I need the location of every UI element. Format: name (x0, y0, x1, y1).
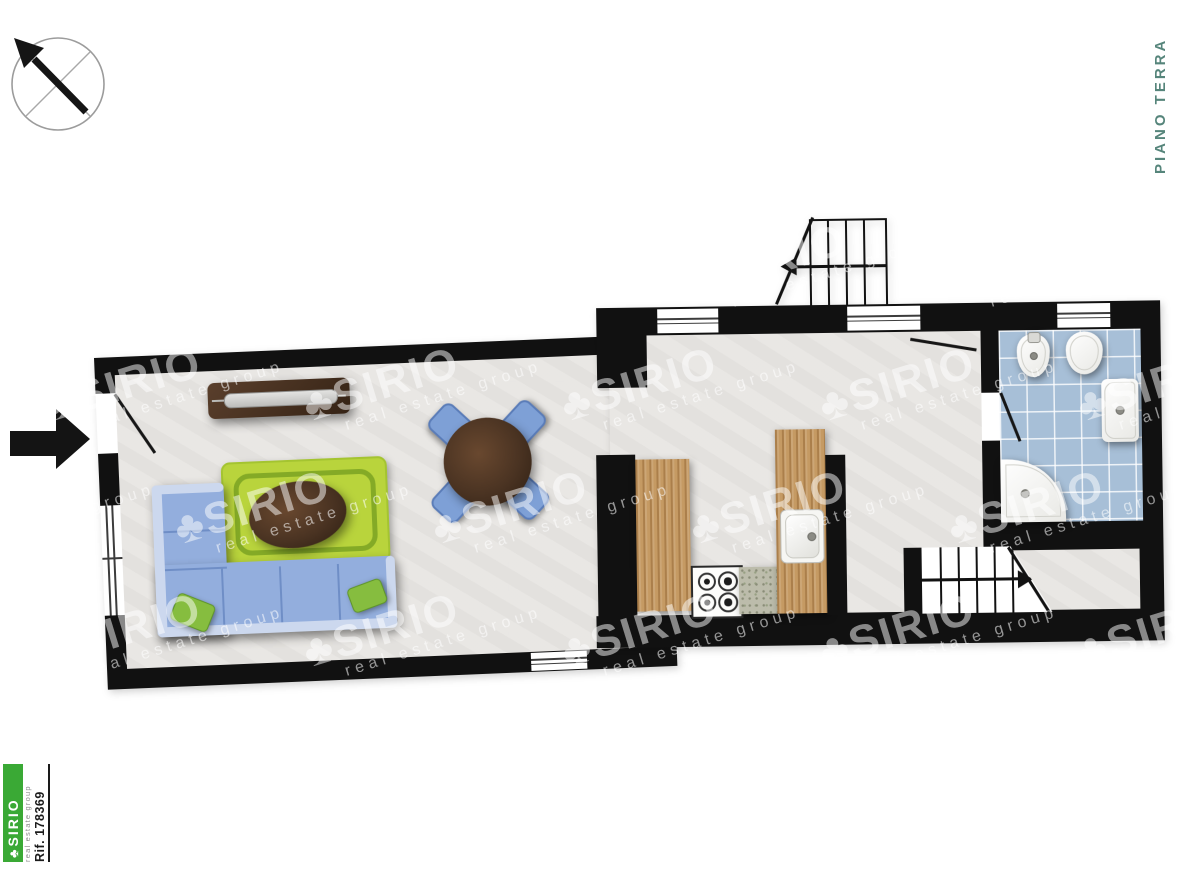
wall-bathroom-left-upper (980, 331, 999, 393)
kitchen-counter-granite (739, 567, 780, 615)
tv-screen (224, 389, 339, 409)
stair-tread (809, 219, 812, 305)
stair-tread (845, 219, 848, 305)
window-hall-1 (657, 308, 718, 333)
wall-kitchen-right (825, 455, 847, 615)
clover-icon: ♣ (7, 849, 20, 858)
logo-tagline: real estate group (23, 764, 33, 862)
entrance-arrow-head (56, 409, 90, 469)
tv-console (207, 377, 350, 419)
compass-icon (6, 30, 110, 134)
wall-bathroom-left-lower (982, 441, 1001, 525)
wall-junction (596, 307, 647, 388)
kitchen-stove (691, 565, 744, 619)
watermark-tile: ♣SIRIOreal estate group (170, 196, 416, 321)
window-bottom-wall (531, 651, 588, 671)
entrance-door-opening (96, 393, 118, 454)
living-dining-section (94, 334, 677, 690)
kitchen-sink (780, 509, 825, 564)
stair-tread (863, 218, 866, 304)
entrance-arrow-icon (10, 431, 56, 456)
stair-direction-line (793, 264, 886, 268)
stair-direction-line (922, 577, 1022, 581)
floorplan-page: { "annotations": { "floor_label": "PIANO… (0, 0, 1180, 885)
bathroom-door-opening (981, 393, 1000, 441)
wall-bottom-right-section (596, 608, 1164, 648)
window-bathroom (1057, 303, 1110, 328)
watermark-tile: ♣SIRIOreal estate group (0, 196, 157, 321)
exterior-staircase (774, 218, 888, 306)
logo-bar: ♣ SIRIO (3, 764, 23, 862)
window-hall-2 (847, 306, 920, 331)
wall-bathroom-bottom (983, 520, 1163, 551)
washbasin (1101, 379, 1139, 443)
stair-tread (827, 219, 830, 305)
logo-brand: SIRIO (6, 798, 20, 846)
stair-direction-arrow (780, 257, 796, 275)
wall-kitchen-left (596, 455, 637, 619)
floor-label: PIANO TERRA (1152, 24, 1176, 174)
agency-logo: ♣ SIRIO real estate group Rif. 178369 (3, 764, 49, 862)
kitchen-bath-section (608, 292, 1173, 652)
wall-stairs-left (903, 548, 922, 614)
kitchen-counter-left (635, 459, 691, 612)
listing-reference: Rif. 178369 (33, 764, 50, 862)
